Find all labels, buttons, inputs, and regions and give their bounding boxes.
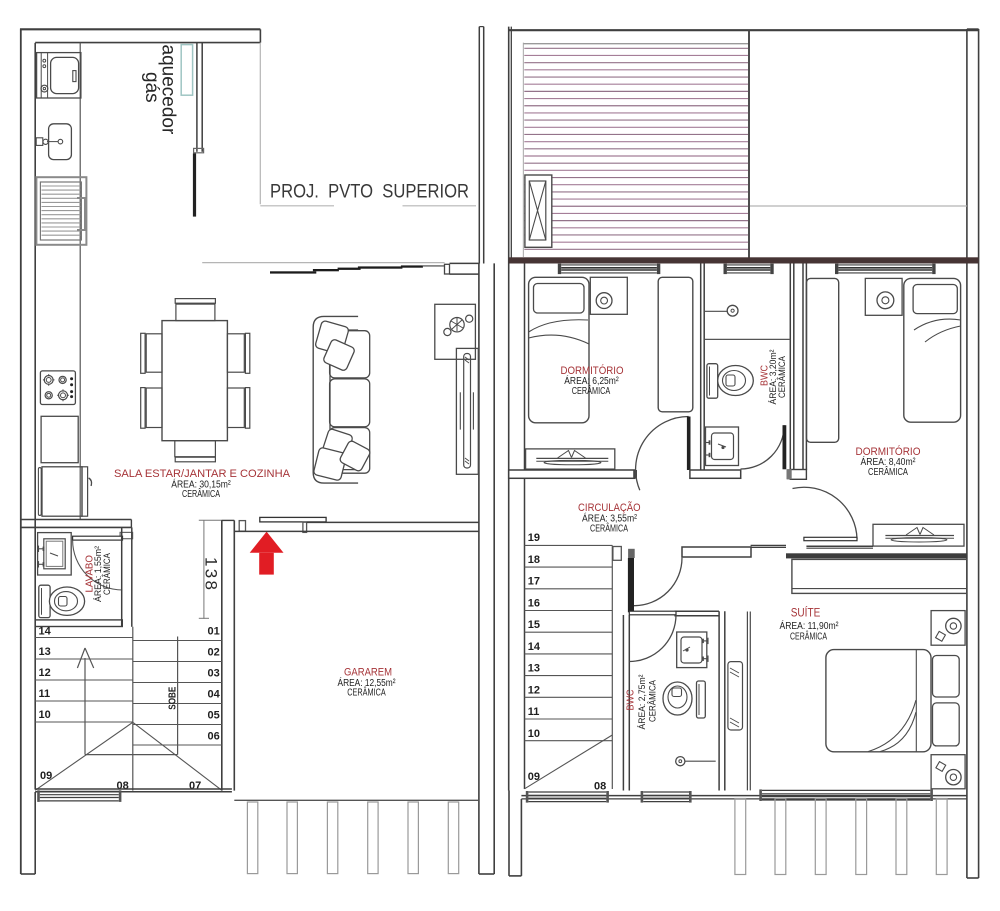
svg-text:08: 08: [117, 780, 129, 792]
svg-text:17: 17: [528, 576, 540, 588]
svg-text:CERÂMICA: CERÂMICA: [182, 487, 220, 500]
svg-text:03: 03: [208, 668, 220, 680]
svg-text:04: 04: [208, 689, 221, 701]
svg-text:12: 12: [528, 685, 540, 697]
svg-text:14: 14: [39, 626, 52, 638]
svg-text:10: 10: [39, 709, 51, 721]
svg-text:19: 19: [528, 532, 540, 544]
svg-text:13: 13: [39, 646, 51, 658]
svg-text:SOBE: SOBE: [168, 686, 179, 709]
svg-text:06: 06: [208, 731, 220, 743]
svg-text:GARAREM: GARAREM: [344, 667, 392, 679]
svg-text:CIRCULAÇÃO: CIRCULAÇÃO: [578, 501, 641, 514]
svg-text:CERÂMICA: CERÂMICA: [572, 384, 611, 397]
svg-text:07: 07: [189, 780, 201, 792]
svg-text:01: 01: [208, 626, 220, 638]
svg-text:10: 10: [528, 728, 540, 740]
svg-text:138: 138: [202, 557, 221, 590]
svg-text:08: 08: [594, 781, 606, 793]
svg-text:BWC: BWC: [625, 689, 637, 710]
svg-text:gás: gás: [141, 72, 162, 103]
svg-text:CERÂMICA: CERÂMICA: [347, 686, 386, 699]
svg-text:11: 11: [528, 706, 540, 718]
svg-text:11: 11: [39, 688, 51, 700]
svg-text:09: 09: [40, 770, 52, 782]
svg-text:13: 13: [528, 663, 540, 675]
svg-text:18: 18: [528, 554, 540, 566]
svg-text:CERÂMICA: CERÂMICA: [868, 465, 908, 478]
svg-text:CERÂMICA: CERÂMICA: [648, 679, 659, 722]
svg-text:09: 09: [528, 771, 540, 783]
svg-text:12: 12: [39, 667, 51, 679]
svg-text:15: 15: [528, 619, 540, 631]
svg-text:ÁREA: 11,90m²: ÁREA: 11,90m²: [780, 619, 840, 632]
svg-text:SUÍTE: SUÍTE: [791, 605, 821, 620]
svg-text:CERÂMICA: CERÂMICA: [590, 522, 628, 535]
svg-text:ÁREA: 2,75m²: ÁREA: 2,75m²: [637, 675, 648, 730]
svg-text:SALA ESTAR/JANTAR E COZINHA: SALA ESTAR/JANTAR E COZINHA: [114, 468, 290, 480]
svg-text:16: 16: [528, 598, 540, 610]
svg-text:PROJ. PVTO SUPERIOR: PROJ. PVTO SUPERIOR: [270, 181, 469, 203]
svg-text:CERÂMICA: CERÂMICA: [102, 552, 113, 595]
svg-text:14: 14: [528, 641, 541, 653]
svg-text:CERÂMICA: CERÂMICA: [790, 630, 827, 643]
svg-text:02: 02: [208, 647, 220, 659]
svg-text:CERÂMICA: CERÂMICA: [777, 355, 788, 398]
svg-text:05: 05: [208, 710, 220, 722]
